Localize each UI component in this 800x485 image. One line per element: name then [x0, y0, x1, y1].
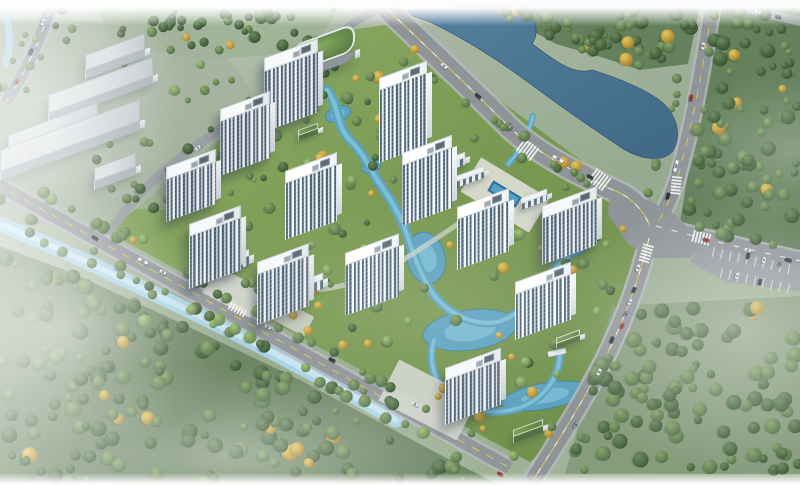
aerial-render-scene — [0, 0, 800, 485]
landscape-layers — [0, 0, 800, 485]
